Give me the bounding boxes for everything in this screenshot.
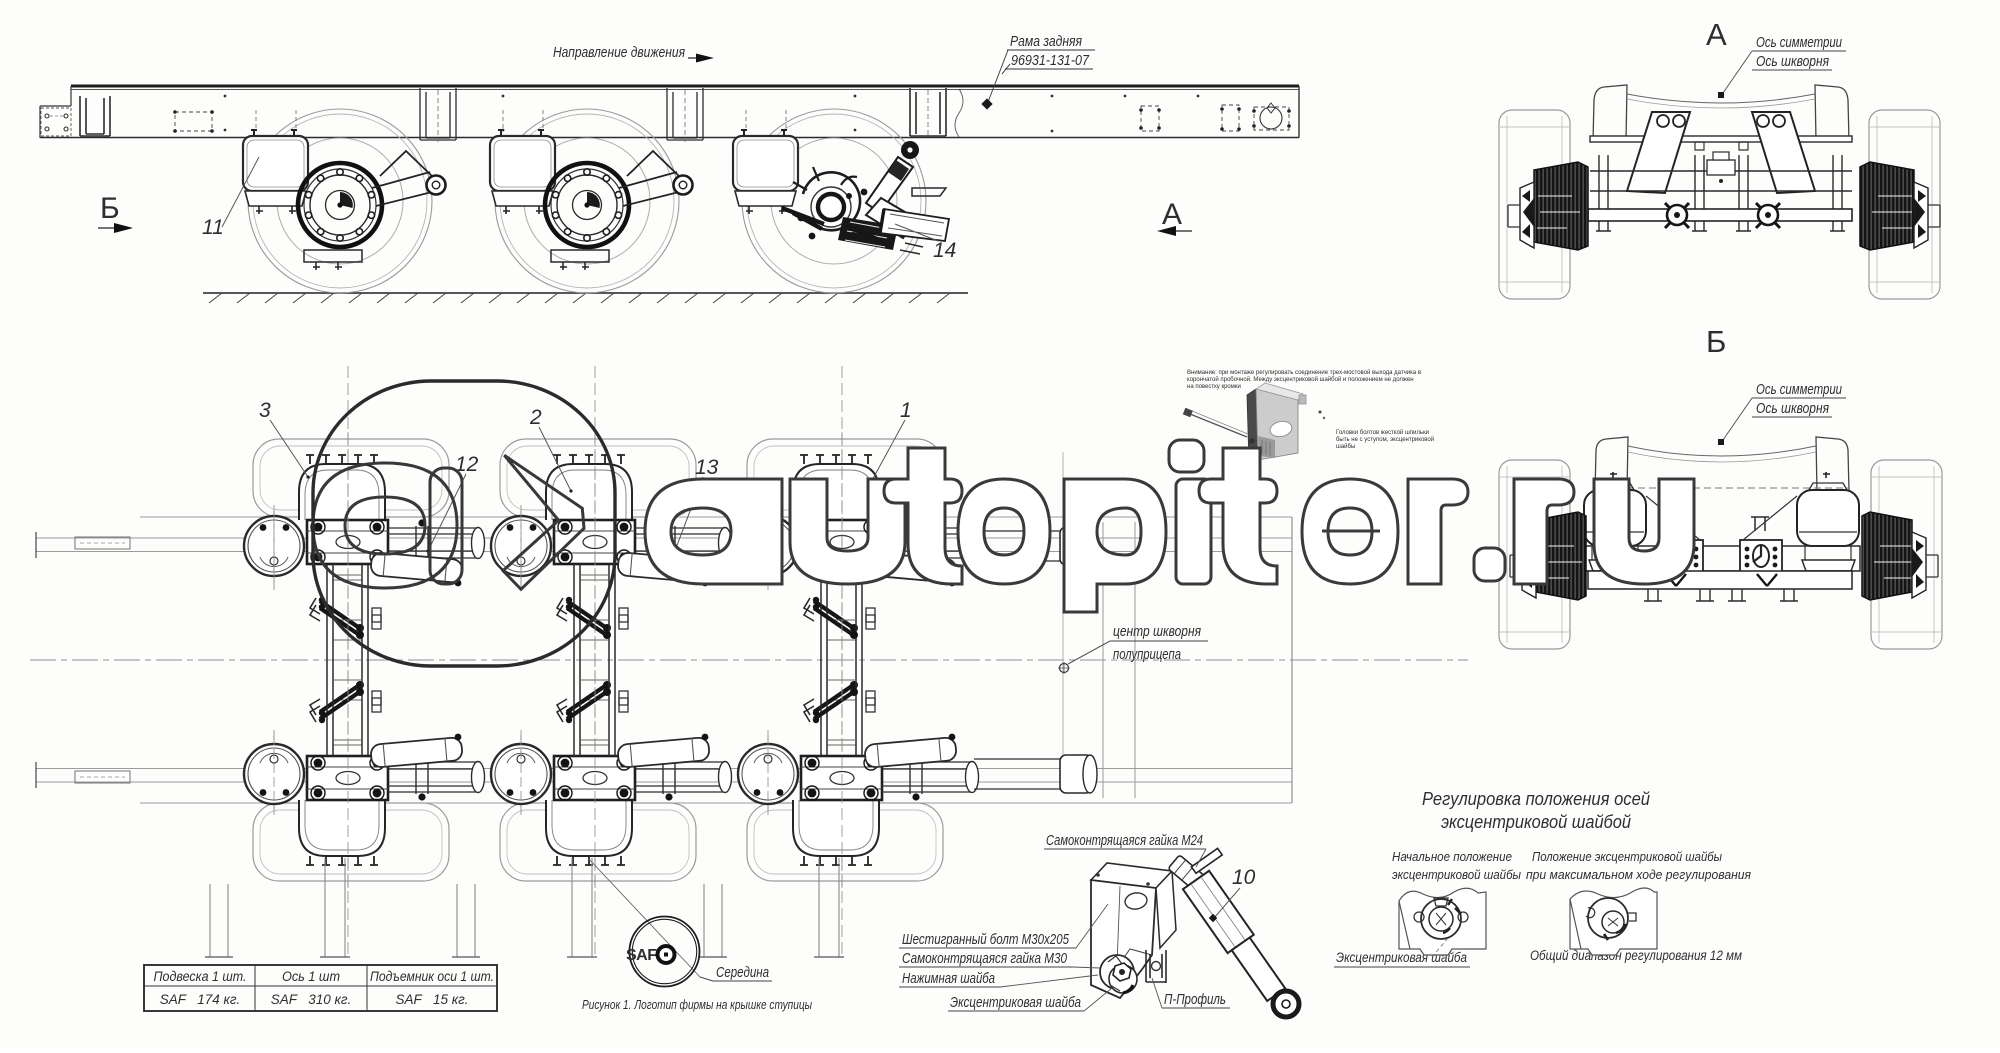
svg-text:3: 3	[259, 399, 271, 422]
svg-text:Б: Б	[100, 192, 120, 225]
svg-text:Шестигранный болт М30х205: Шестигранный болт М30х205	[902, 932, 1070, 948]
svg-text:Ось шкворня: Ось шкворня	[1756, 401, 1829, 417]
svg-text:Самоконтрящаяся гайка М30: Самоконтрящаяся гайка М30	[902, 951, 1067, 967]
svg-text:SAF 310 кг.: SAF 310 кг.	[271, 992, 352, 1007]
svg-text:полуприцепа: полуприцепа	[1113, 647, 1181, 663]
svg-text:SAF 174 кг.: SAF 174 кг.	[160, 992, 241, 1007]
svg-text:центр шкворня: центр шкворня	[1113, 624, 1201, 640]
svg-text:А: А	[1706, 17, 1727, 52]
svg-text:Середина: Середина	[716, 965, 769, 981]
svg-text:Подъемник оси 1 шт.: Подъемник оси 1 шт.	[370, 969, 494, 984]
svg-text:Ось симметрии: Ось симметрии	[1756, 35, 1842, 51]
svg-text:Ось 1 шт: Ось 1 шт	[282, 969, 340, 984]
svg-text:шайбы: шайбы	[1336, 443, 1355, 450]
svg-text:10: 10	[1232, 866, 1256, 889]
svg-text:при максимальном ходе регулиро: при максимальном ходе регулирования	[1526, 867, 1751, 882]
svg-text:Самоконтрящаяся гайка М24: Самоконтрящаяся гайка М24	[1046, 833, 1203, 849]
svg-text:Эксцентриковая шайба: Эксцентриковая шайба	[950, 995, 1081, 1011]
svg-text:Направление движения: Направление движения	[553, 45, 685, 61]
svg-text:SAF 15 кг.: SAF 15 кг.	[395, 992, 468, 1007]
svg-text:на повестку кромки: на повестку кромки	[1187, 384, 1241, 390]
svg-text:А: А	[1162, 198, 1182, 231]
svg-text:14: 14	[933, 239, 956, 262]
svg-text:Рама задняя: Рама задняя	[1010, 34, 1082, 50]
svg-text:SAF: SAF	[626, 947, 657, 964]
svg-text:Нажимная шайба: Нажимная шайба	[902, 971, 995, 987]
svg-text:Ось шкворня: Ось шкворня	[1756, 54, 1829, 70]
svg-text:эксцентриковой шайбой: эксцентриковой шайбой	[1441, 811, 1631, 832]
svg-text:Положение эксцентриковой шайбы: Положение эксцентриковой шайбы	[1532, 849, 1722, 864]
svg-text:Подвеска 1 шт.: Подвеска 1 шт.	[154, 969, 247, 984]
svg-text:96931-131-07: 96931-131-07	[1011, 53, 1090, 69]
svg-text:Внимание: при монтаже регулиро: Внимание: при монтаже регулировать соеди…	[1187, 369, 1421, 376]
svg-text:1: 1	[900, 399, 912, 422]
svg-text:Рисунок 1. Логотип фирмы на кр: Рисунок 1. Логотип фирмы на крышке ступи…	[582, 998, 812, 1012]
svg-text:эксцентриковой шайбы: эксцентриковой шайбы	[1392, 867, 1521, 882]
svg-text:11: 11	[202, 216, 224, 239]
svg-text:2: 2	[529, 406, 542, 429]
svg-text:Ось симметрии: Ось симметрии	[1756, 382, 1842, 398]
svg-text:Общий диапазон регулирования 1: Общий диапазон регулирования 12 мм	[1530, 948, 1742, 963]
svg-text:13: 13	[695, 456, 719, 479]
svg-text:корончатой пробочной. Между эк: корончатой пробочной. Между эксцентриков…	[1187, 376, 1414, 383]
svg-text:П-Профиль: П-Профиль	[1164, 992, 1226, 1008]
svg-text:Начальное положение: Начальное положение	[1392, 849, 1512, 864]
svg-text:Регулировка положения осей: Регулировка положения осей	[1422, 788, 1650, 809]
svg-text:Б: Б	[1706, 324, 1726, 359]
svg-text:Головки болтов жесткой шпильки: Головки болтов жесткой шпильки	[1336, 429, 1429, 436]
svg-text:быть не с уступом, эксцентрико: быть не с уступом, эксцентриковой	[1336, 436, 1434, 443]
